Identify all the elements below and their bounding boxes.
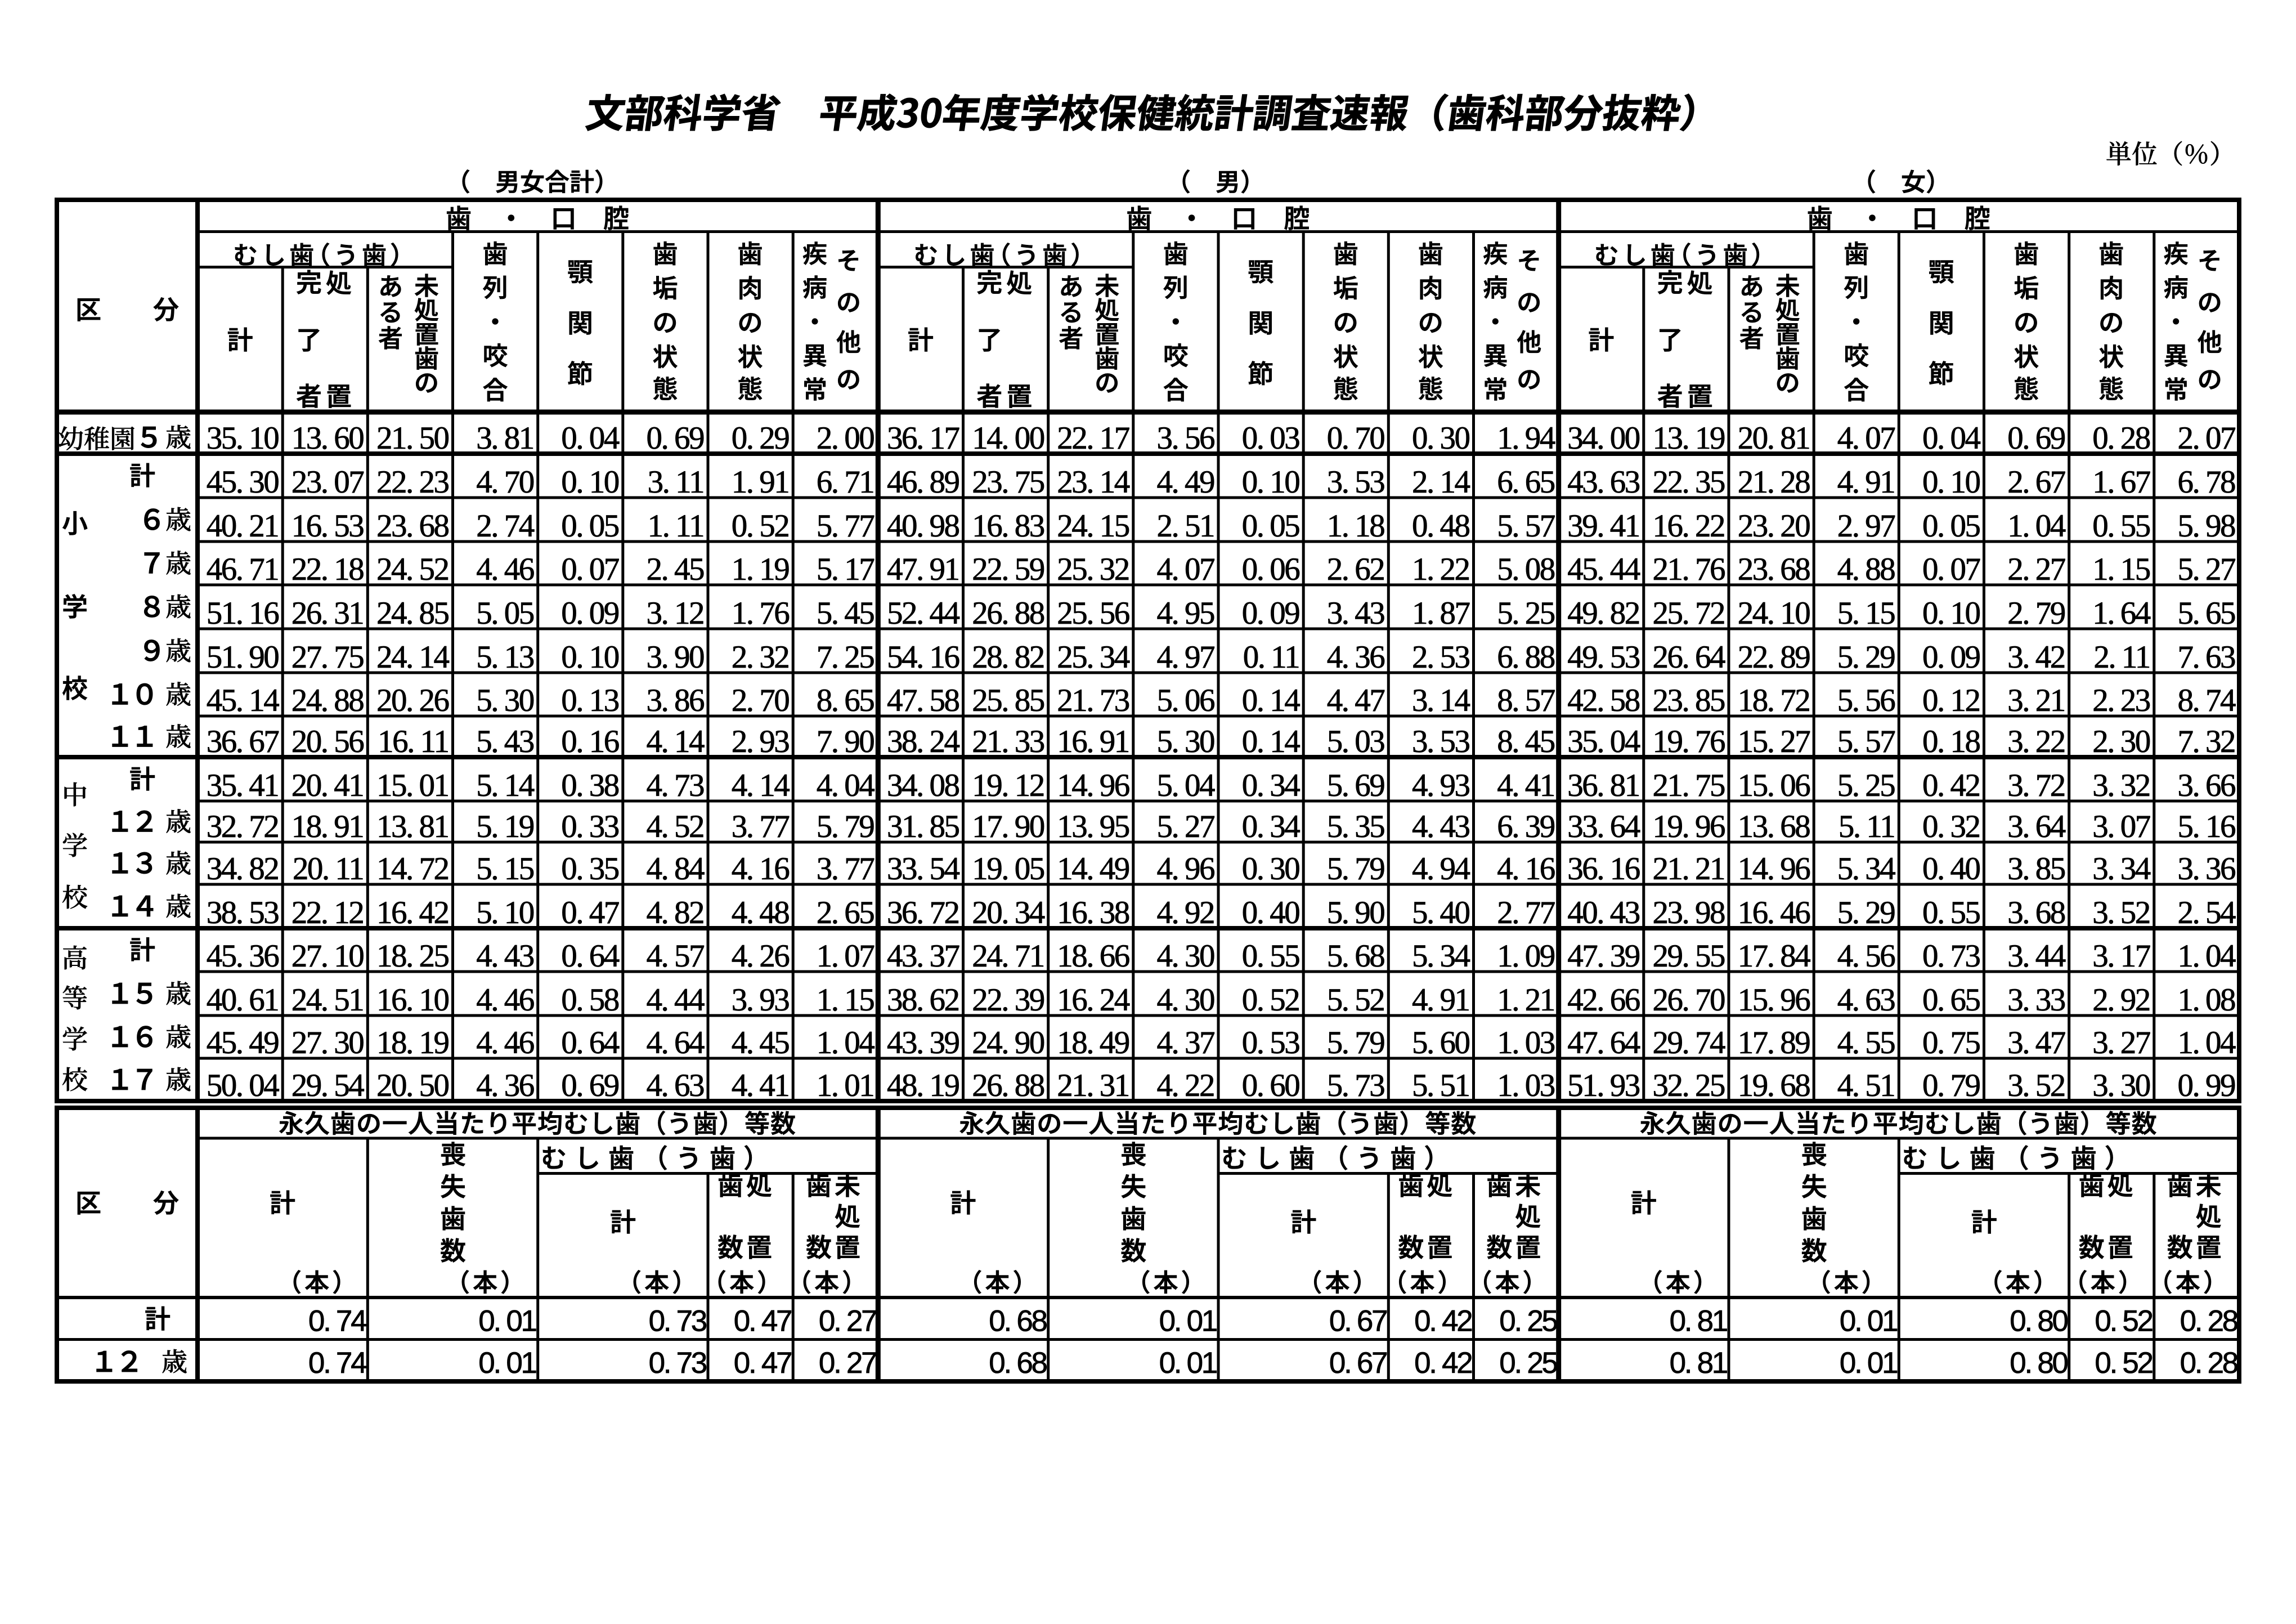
svg-text:49. 53: 49. 53 <box>1567 639 1640 675</box>
svg-text:16. 46: 16. 46 <box>1738 895 1810 930</box>
svg-text:3. 21: 3. 21 <box>2007 683 2065 718</box>
svg-text:16. 42: 16. 42 <box>376 895 449 930</box>
svg-text:4. 36: 4. 36 <box>476 1068 534 1103</box>
svg-text:0. 05: 0. 05 <box>561 508 619 544</box>
svg-text:7. 90: 7. 90 <box>817 724 875 759</box>
svg-text:23. 75: 23. 75 <box>972 464 1044 500</box>
svg-text:16. 24: 16. 24 <box>1057 982 1130 1018</box>
svg-text:23. 20: 23. 20 <box>1738 508 1810 544</box>
svg-text:1. 76: 1. 76 <box>732 596 790 631</box>
svg-text:4. 92: 4. 92 <box>1157 895 1214 930</box>
svg-text:0. 34: 0. 34 <box>1242 768 1301 803</box>
svg-text:47. 91: 47. 91 <box>887 552 959 587</box>
svg-text:40. 98: 40. 98 <box>887 508 959 544</box>
svg-text:5. 05: 5. 05 <box>476 596 534 631</box>
svg-text:43. 63: 43. 63 <box>1567 464 1640 500</box>
svg-text:0. 10: 0. 10 <box>1922 464 1980 500</box>
svg-text:1. 03: 1. 03 <box>1497 1068 1555 1103</box>
svg-text:16. 22: 16. 22 <box>1653 508 1725 544</box>
svg-text:3. 44: 3. 44 <box>2007 938 2066 974</box>
svg-text:15. 06: 15. 06 <box>1738 768 1810 803</box>
svg-text:27. 30: 27. 30 <box>292 1025 364 1061</box>
svg-text:22. 35: 22. 35 <box>1653 464 1725 500</box>
svg-text:0. 32: 0. 32 <box>1922 809 1980 844</box>
svg-text:22. 17: 22. 17 <box>1057 420 1129 456</box>
svg-text:0. 04: 0. 04 <box>561 420 620 456</box>
svg-text:43. 37: 43. 37 <box>887 938 959 974</box>
svg-text:0. 55: 0. 55 <box>1922 895 1980 930</box>
svg-text:13. 95: 13. 95 <box>1057 809 1129 844</box>
svg-text:0. 65: 0. 65 <box>1922 982 1980 1018</box>
svg-text:5. 34: 5. 34 <box>1837 851 1896 887</box>
svg-text:25. 34: 25. 34 <box>1057 639 1130 675</box>
svg-text:4. 49: 4. 49 <box>1157 464 1215 500</box>
svg-text:5. 43: 5. 43 <box>476 724 534 759</box>
svg-text:6. 88: 6. 88 <box>1497 639 1555 675</box>
svg-text:38. 24: 38. 24 <box>887 724 960 759</box>
svg-text:0. 52: 0. 52 <box>2095 1305 2152 1338</box>
svg-text:3. 32: 3. 32 <box>2092 768 2150 803</box>
svg-text:23. 07: 23. 07 <box>292 464 364 500</box>
svg-text:0. 38: 0. 38 <box>561 768 619 803</box>
svg-text:3. 17: 3. 17 <box>2092 938 2150 974</box>
svg-text:1. 18: 1. 18 <box>1327 508 1385 544</box>
svg-text:21. 50: 21. 50 <box>376 420 449 456</box>
svg-text:26. 70: 26. 70 <box>1653 982 1725 1018</box>
svg-text:21. 31: 21. 31 <box>1057 1068 1129 1103</box>
svg-text:4. 63: 4. 63 <box>647 1068 705 1103</box>
svg-text:0. 42: 0. 42 <box>1414 1346 1472 1380</box>
svg-text:5. 10: 5. 10 <box>476 895 534 930</box>
svg-text:36. 67: 36. 67 <box>207 724 279 759</box>
svg-text:1. 07: 1. 07 <box>817 938 875 974</box>
svg-text:4. 36: 4. 36 <box>1327 639 1385 675</box>
svg-text:5. 56: 5. 56 <box>1837 683 1895 718</box>
svg-text:3. 56: 3. 56 <box>1157 420 1215 456</box>
svg-text:36. 17: 36. 17 <box>887 420 959 456</box>
svg-text:1. 94: 1. 94 <box>1497 420 1555 456</box>
svg-text:3. 47: 3. 47 <box>2007 1025 2065 1061</box>
svg-text:21. 33: 21. 33 <box>972 724 1044 759</box>
svg-text:20. 41: 20. 41 <box>292 768 364 803</box>
svg-text:15. 96: 15. 96 <box>1738 982 1810 1018</box>
svg-text:23. 68: 23. 68 <box>1738 552 1810 587</box>
svg-text:0. 07: 0. 07 <box>1922 552 1980 587</box>
svg-text:21. 21: 21. 21 <box>1653 851 1725 887</box>
svg-text:3. 27: 3. 27 <box>2092 1025 2150 1061</box>
svg-text:32. 72: 32. 72 <box>207 809 279 844</box>
svg-text:7. 25: 7. 25 <box>817 639 875 675</box>
svg-text:1. 91: 1. 91 <box>732 464 789 500</box>
svg-text:19. 96: 19. 96 <box>1653 809 1725 844</box>
svg-text:0. 68: 0. 68 <box>989 1346 1047 1380</box>
svg-text:0. 05: 0. 05 <box>1242 508 1300 544</box>
svg-text:2. 74: 2. 74 <box>476 508 535 544</box>
svg-text:5. 13: 5. 13 <box>476 639 534 675</box>
svg-text:21. 28: 21. 28 <box>1738 464 1810 500</box>
svg-text:4. 30: 4. 30 <box>1157 982 1215 1018</box>
svg-text:16. 91: 16. 91 <box>1057 724 1129 759</box>
svg-text:16. 38: 16. 38 <box>1057 895 1129 930</box>
svg-text:2. 67: 2. 67 <box>2007 464 2065 500</box>
svg-text:2. 51: 2. 51 <box>1157 508 1214 544</box>
svg-text:45. 36: 45. 36 <box>207 938 279 974</box>
svg-text:14. 49: 14. 49 <box>1057 851 1129 887</box>
svg-text:2. 65: 2. 65 <box>817 895 875 930</box>
svg-text:0. 27: 0. 27 <box>819 1305 876 1338</box>
svg-text:3. 53: 3. 53 <box>1412 724 1470 759</box>
svg-text:4. 43: 4. 43 <box>476 938 534 974</box>
svg-text:46. 71: 46. 71 <box>207 552 279 587</box>
svg-text:2. 23: 2. 23 <box>2092 683 2150 718</box>
svg-text:0. 18: 0. 18 <box>1922 724 1980 759</box>
svg-text:3. 12: 3. 12 <box>647 596 704 631</box>
svg-text:21. 76: 21. 76 <box>1653 552 1725 587</box>
svg-text:24. 88: 24. 88 <box>292 683 364 718</box>
svg-text:4. 70: 4. 70 <box>476 464 534 500</box>
svg-text:33. 64: 33. 64 <box>1567 809 1640 844</box>
svg-text:2. 32: 2. 32 <box>732 639 789 675</box>
svg-text:16. 10: 16. 10 <box>376 982 449 1018</box>
svg-text:4. 30: 4. 30 <box>1157 938 1215 974</box>
svg-text:4. 94: 4. 94 <box>1412 851 1470 887</box>
svg-text:5. 79: 5. 79 <box>1327 1025 1385 1061</box>
svg-text:0. 01: 0. 01 <box>1840 1305 1897 1338</box>
svg-text:5. 27: 5. 27 <box>1157 809 1215 844</box>
svg-text:20. 11: 20. 11 <box>293 851 363 887</box>
svg-text:4. 41: 4. 41 <box>732 1068 789 1103</box>
svg-text:13. 68: 13. 68 <box>1738 809 1810 844</box>
svg-text:25. 56: 25. 56 <box>1057 596 1129 631</box>
svg-text:3. 90: 3. 90 <box>647 639 705 675</box>
svg-text:29. 74: 29. 74 <box>1653 1025 1726 1061</box>
svg-text:0. 42: 0. 42 <box>1922 768 1980 803</box>
svg-text:1. 21: 1. 21 <box>1497 982 1554 1018</box>
svg-text:52. 44: 52. 44 <box>887 596 960 631</box>
svg-text:5. 57: 5. 57 <box>1837 724 1895 759</box>
svg-text:22. 59: 22. 59 <box>972 552 1044 587</box>
svg-text:0. 67: 0. 67 <box>1329 1305 1387 1338</box>
svg-text:8. 45: 8. 45 <box>1497 724 1555 759</box>
svg-text:48. 19: 48. 19 <box>887 1068 959 1103</box>
svg-text:0. 01: 0. 01 <box>1159 1346 1217 1380</box>
svg-text:0. 52: 0. 52 <box>2095 1346 2152 1380</box>
svg-text:0. 01: 0. 01 <box>1840 1346 1897 1380</box>
svg-text:4. 04: 4. 04 <box>817 768 875 803</box>
svg-text:5. 04: 5. 04 <box>1157 768 1216 803</box>
svg-text:13. 19: 13. 19 <box>1653 420 1725 456</box>
svg-text:4. 91: 4. 91 <box>1837 464 1895 500</box>
svg-text:0. 11: 0. 11 <box>1243 639 1299 675</box>
svg-text:0. 70: 0. 70 <box>1327 420 1385 456</box>
svg-text:24. 15: 24. 15 <box>1057 508 1129 544</box>
svg-text:24. 51: 24. 51 <box>292 982 364 1018</box>
svg-text:1. 04: 1. 04 <box>2007 508 2066 544</box>
svg-text:0. 10: 0. 10 <box>1922 596 1980 631</box>
svg-text:0. 28: 0. 28 <box>2092 420 2150 456</box>
svg-text:3. 14: 3. 14 <box>1412 683 1470 718</box>
svg-text:4. 41: 4. 41 <box>1497 768 1554 803</box>
svg-text:23. 68: 23. 68 <box>376 508 449 544</box>
svg-text:3. 11: 3. 11 <box>648 464 703 500</box>
svg-text:0. 16: 0. 16 <box>561 724 619 759</box>
svg-text:28. 82: 28. 82 <box>972 639 1044 675</box>
svg-text:0. 01: 0. 01 <box>478 1346 536 1380</box>
svg-text:0. 40: 0. 40 <box>1922 851 1980 887</box>
svg-text:16. 53: 16. 53 <box>292 508 364 544</box>
svg-text:20. 56: 20. 56 <box>292 724 364 759</box>
svg-text:0. 09: 0. 09 <box>561 596 619 631</box>
svg-text:5. 65: 5. 65 <box>2178 596 2236 631</box>
svg-text:4. 07: 4. 07 <box>1837 420 1895 456</box>
svg-text:4. 37: 4. 37 <box>1157 1025 1215 1061</box>
svg-text:4. 91: 4. 91 <box>1412 982 1469 1018</box>
svg-text:21. 73: 21. 73 <box>1057 683 1129 718</box>
svg-text:35. 04: 35. 04 <box>1567 724 1640 759</box>
svg-text:0. 07: 0. 07 <box>561 552 619 587</box>
svg-text:3. 34: 3. 34 <box>2092 851 2151 887</box>
svg-text:5. 16: 5. 16 <box>2178 809 2236 844</box>
svg-text:45. 14: 45. 14 <box>207 683 280 718</box>
svg-text:23. 85: 23. 85 <box>1653 683 1725 718</box>
svg-text:19. 76: 19. 76 <box>1653 724 1725 759</box>
svg-text:39. 41: 39. 41 <box>1567 508 1639 544</box>
svg-text:4. 95: 4. 95 <box>1157 596 1215 631</box>
svg-text:0. 69: 0. 69 <box>2007 420 2065 456</box>
svg-text:5. 90: 5. 90 <box>1327 895 1385 930</box>
svg-text:36. 16: 36. 16 <box>1567 851 1640 887</box>
svg-text:38. 53: 38. 53 <box>207 895 279 930</box>
svg-text:22. 39: 22. 39 <box>972 982 1044 1018</box>
svg-text:5. 06: 5. 06 <box>1157 683 1215 718</box>
svg-text:5. 68: 5. 68 <box>1327 938 1385 974</box>
svg-text:18. 19: 18. 19 <box>376 1025 449 1061</box>
svg-text:27. 75: 27. 75 <box>292 639 364 675</box>
svg-text:4. 51: 4. 51 <box>1837 1068 1895 1103</box>
svg-text:5. 30: 5. 30 <box>476 683 534 718</box>
svg-text:45. 44: 45. 44 <box>1567 552 1640 587</box>
svg-text:0. 69: 0. 69 <box>561 1068 619 1103</box>
svg-text:54. 16: 54. 16 <box>887 639 959 675</box>
svg-text:5. 15: 5. 15 <box>1837 596 1895 631</box>
svg-text:23. 14: 23. 14 <box>1057 464 1130 500</box>
svg-text:4. 88: 4. 88 <box>1837 552 1895 587</box>
svg-text:3. 68: 3. 68 <box>2007 895 2065 930</box>
svg-text:4. 97: 4. 97 <box>1157 639 1215 675</box>
svg-text:5. 40: 5. 40 <box>1412 895 1470 930</box>
svg-text:0. 79: 0. 79 <box>1922 1068 1980 1103</box>
svg-text:45. 30: 45. 30 <box>207 464 279 500</box>
svg-text:1. 67: 1. 67 <box>2092 464 2150 500</box>
svg-text:14. 72: 14. 72 <box>376 851 449 887</box>
svg-text:17. 90: 17. 90 <box>972 809 1044 844</box>
svg-text:5. 14: 5. 14 <box>476 768 535 803</box>
svg-text:0. 29: 0. 29 <box>732 420 790 456</box>
svg-text:0. 04: 0. 04 <box>1922 420 1981 456</box>
svg-text:4. 63: 4. 63 <box>1837 982 1895 1018</box>
svg-text:0. 74: 0. 74 <box>308 1305 366 1338</box>
svg-text:34. 08: 34. 08 <box>887 768 959 803</box>
svg-text:5. 08: 5. 08 <box>1497 552 1555 587</box>
svg-text:29. 55: 29. 55 <box>1653 938 1725 974</box>
svg-text:4. 82: 4. 82 <box>647 895 704 930</box>
svg-text:1. 15: 1. 15 <box>2092 552 2150 587</box>
svg-text:4. 56: 4. 56 <box>1837 938 1895 974</box>
svg-text:3. 85: 3. 85 <box>2007 851 2065 887</box>
svg-text:22. 23: 22. 23 <box>376 464 449 500</box>
svg-text:1. 04: 1. 04 <box>817 1025 875 1061</box>
svg-text:1. 04: 1. 04 <box>2178 938 2236 974</box>
svg-text:3. 43: 3. 43 <box>1327 596 1385 631</box>
svg-text:2. 00: 2. 00 <box>817 420 875 456</box>
svg-text:2. 53: 2. 53 <box>1412 639 1470 675</box>
svg-text:51. 16: 51. 16 <box>207 596 279 631</box>
svg-text:4. 96: 4. 96 <box>1157 851 1215 887</box>
svg-text:0. 25: 0. 25 <box>1499 1305 1557 1338</box>
svg-text:4. 16: 4. 16 <box>1497 851 1555 887</box>
svg-text:0. 35: 0. 35 <box>561 851 619 887</box>
svg-text:0. 80: 0. 80 <box>2010 1346 2068 1380</box>
svg-text:20. 81: 20. 81 <box>1738 420 1810 456</box>
svg-text:4. 43: 4. 43 <box>1412 809 1470 844</box>
svg-text:24. 85: 24. 85 <box>376 596 449 631</box>
svg-text:4. 57: 4. 57 <box>647 938 705 974</box>
svg-text:15. 27: 15. 27 <box>1738 724 1810 759</box>
svg-text:4. 16: 4. 16 <box>732 851 790 887</box>
svg-text:42. 66: 42. 66 <box>1567 982 1640 1018</box>
svg-text:0. 81: 0. 81 <box>1670 1305 1727 1338</box>
svg-text:0. 25: 0. 25 <box>1499 1346 1557 1380</box>
svg-text:0. 13: 0. 13 <box>561 683 619 718</box>
svg-text:3. 81: 3. 81 <box>476 420 533 456</box>
svg-text:3. 77: 3. 77 <box>732 809 790 844</box>
svg-text:35. 41: 35. 41 <box>207 768 279 803</box>
svg-text:8. 57: 8. 57 <box>1497 683 1555 718</box>
svg-text:49. 82: 49. 82 <box>1567 596 1639 631</box>
svg-text:7. 63: 7. 63 <box>2178 639 2236 675</box>
svg-text:4. 84: 4. 84 <box>647 851 705 887</box>
svg-text:5. 77: 5. 77 <box>817 508 875 544</box>
svg-text:2. 07: 2. 07 <box>2178 420 2236 456</box>
svg-text:17. 89: 17. 89 <box>1738 1025 1810 1061</box>
svg-text:1. 08: 1. 08 <box>2178 982 2236 1018</box>
svg-text:27. 10: 27. 10 <box>292 938 364 974</box>
svg-text:0. 47: 0. 47 <box>561 895 619 930</box>
svg-text:5. 17: 5. 17 <box>817 552 875 587</box>
svg-text:0. 12: 0. 12 <box>1922 683 1980 718</box>
svg-text:4. 07: 4. 07 <box>1157 552 1215 587</box>
svg-text:1. 01: 1. 01 <box>817 1068 874 1103</box>
svg-text:21. 75: 21. 75 <box>1653 768 1725 803</box>
svg-text:18. 91: 18. 91 <box>292 809 364 844</box>
svg-text:0. 42: 0. 42 <box>1414 1305 1472 1338</box>
svg-text:0. 28: 0. 28 <box>2180 1346 2238 1380</box>
svg-text:24. 90: 24. 90 <box>972 1025 1044 1061</box>
svg-text:29. 54: 29. 54 <box>292 1068 365 1103</box>
svg-text:3. 64: 3. 64 <box>2007 809 2066 844</box>
svg-text:4. 45: 4. 45 <box>732 1025 790 1061</box>
svg-text:0. 99: 0. 99 <box>2178 1068 2236 1103</box>
svg-text:0. 27: 0. 27 <box>819 1346 876 1380</box>
svg-text:5. 98: 5. 98 <box>2178 508 2236 544</box>
svg-text:5. 52: 5. 52 <box>1327 982 1384 1018</box>
svg-text:23. 98: 23. 98 <box>1653 895 1725 930</box>
svg-text:16. 11: 16. 11 <box>378 724 448 759</box>
svg-text:0. 55: 0. 55 <box>1242 938 1300 974</box>
svg-text:0. 34: 0. 34 <box>1242 809 1301 844</box>
svg-text:14. 00: 14. 00 <box>972 420 1044 456</box>
svg-text:1. 15: 1. 15 <box>817 982 875 1018</box>
svg-text:19. 05: 19. 05 <box>972 851 1044 887</box>
svg-text:4. 64: 4. 64 <box>647 1025 705 1061</box>
svg-text:40. 21: 40. 21 <box>207 508 279 544</box>
svg-text:0. 52: 0. 52 <box>1242 982 1299 1018</box>
svg-text:2. 93: 2. 93 <box>732 724 790 759</box>
svg-text:0. 52: 0. 52 <box>732 508 789 544</box>
svg-text:3. 52: 3. 52 <box>2092 895 2150 930</box>
svg-text:25. 32: 25. 32 <box>1057 552 1129 587</box>
svg-text:2. 62: 2. 62 <box>1327 552 1384 587</box>
svg-text:0. 73: 0. 73 <box>649 1305 707 1338</box>
svg-text:26. 88: 26. 88 <box>972 1068 1044 1103</box>
svg-text:6. 39: 6. 39 <box>1497 809 1555 844</box>
svg-text:4. 52: 4. 52 <box>647 809 704 844</box>
svg-text:5. 79: 5. 79 <box>817 809 875 844</box>
svg-text:0. 60: 0. 60 <box>1242 1068 1300 1103</box>
svg-text:34. 82: 34. 82 <box>207 851 279 887</box>
svg-text:22. 89: 22. 89 <box>1738 639 1810 675</box>
svg-text:4. 46: 4. 46 <box>476 1025 534 1061</box>
svg-text:1. 87: 1. 87 <box>1412 596 1470 631</box>
svg-text:38. 62: 38. 62 <box>887 982 959 1018</box>
svg-text:22. 18: 22. 18 <box>292 552 364 587</box>
svg-text:0. 10: 0. 10 <box>561 639 619 675</box>
svg-text:14. 96: 14. 96 <box>1057 768 1129 803</box>
svg-text:13. 81: 13. 81 <box>376 809 449 844</box>
svg-text:26. 64: 26. 64 <box>1653 639 1726 675</box>
svg-text:3. 66: 3. 66 <box>2178 768 2236 803</box>
svg-text:2. 45: 2. 45 <box>647 552 705 587</box>
svg-text:40. 61: 40. 61 <box>207 982 279 1018</box>
svg-text:0. 30: 0. 30 <box>1242 851 1300 887</box>
svg-text:4. 93: 4. 93 <box>1412 768 1470 803</box>
svg-text:5. 25: 5. 25 <box>1497 596 1555 631</box>
svg-text:3. 77: 3. 77 <box>817 851 875 887</box>
svg-text:3. 86: 3. 86 <box>647 683 705 718</box>
svg-text:24. 10: 24. 10 <box>1738 596 1810 631</box>
svg-text:0. 48: 0. 48 <box>1412 508 1470 544</box>
svg-text:26. 88: 26. 88 <box>972 596 1044 631</box>
svg-text:5. 60: 5. 60 <box>1412 1025 1470 1061</box>
svg-text:0. 67: 0. 67 <box>1329 1346 1387 1380</box>
svg-text:20. 34: 20. 34 <box>972 895 1045 930</box>
svg-text:20. 26: 20. 26 <box>376 683 449 718</box>
svg-text:4. 48: 4. 48 <box>732 895 790 930</box>
svg-text:25. 85: 25. 85 <box>972 683 1044 718</box>
svg-text:5. 29: 5. 29 <box>1837 639 1895 675</box>
svg-text:3. 22: 3. 22 <box>2007 724 2065 759</box>
svg-text:0. 28: 0. 28 <box>2180 1305 2238 1338</box>
svg-text:5. 35: 5. 35 <box>1327 809 1385 844</box>
svg-text:4. 46: 4. 46 <box>476 982 534 1018</box>
svg-text:42. 58: 42. 58 <box>1567 683 1640 718</box>
svg-text:2. 77: 2. 77 <box>1497 895 1555 930</box>
svg-text:3. 30: 3. 30 <box>2092 1068 2150 1103</box>
svg-text:4. 73: 4. 73 <box>647 768 705 803</box>
svg-text:15. 01: 15. 01 <box>376 768 449 803</box>
svg-text:5. 51: 5. 51 <box>1412 1068 1469 1103</box>
svg-text:0. 40: 0. 40 <box>1242 895 1300 930</box>
